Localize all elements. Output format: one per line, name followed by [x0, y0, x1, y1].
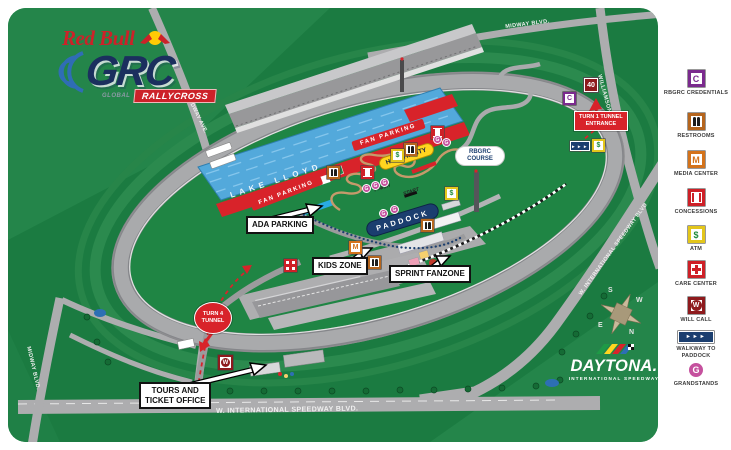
daytona-flags-icon	[590, 342, 638, 358]
legend-item-walkway: ►►► WALKWAY TO PADDOCK	[661, 331, 731, 360]
legend-item-concessions: CONCESSIONS	[661, 189, 731, 216]
legend-item-atm: $ ATM	[661, 226, 731, 253]
media-center-icon: M	[349, 241, 362, 254]
turn4-line2: TUNNEL	[202, 318, 225, 325]
legend-label: MEDIA CENTER	[674, 171, 718, 178]
grandstand-glyph: G	[365, 186, 369, 192]
atm-icon: $	[688, 226, 705, 243]
atm-icon: $	[391, 149, 404, 162]
grandstands-icon: G	[379, 209, 388, 218]
legend-item-restrooms: RESTROOMS	[661, 113, 731, 140]
credentials-icon: C	[688, 70, 705, 87]
grandstand-glyph: G	[445, 140, 449, 146]
grc-wordmark: GRC	[83, 47, 175, 95]
walkway-icon: ►►►	[678, 331, 714, 343]
legend-item-grandstands: G GRANDSTANDS	[661, 362, 731, 388]
compass-s: S	[608, 287, 613, 294]
grandstand-glyph: G	[692, 365, 699, 375]
grandstand-glyph: G	[382, 211, 386, 217]
rbgrc-course-label: RBGRC COURSE	[455, 146, 505, 166]
grandstand-glyph: G	[436, 137, 440, 143]
credentials-glyph: C	[693, 74, 700, 84]
grandstand-glyph: G	[383, 180, 387, 186]
turn1-line2: ENTRANCE	[586, 121, 617, 127]
restrooms-icon	[368, 256, 381, 269]
legend-label: RBGRC CREDENTIALS	[664, 90, 728, 97]
media-center-icon: M	[688, 151, 705, 168]
will-call-glyph: W	[221, 358, 230, 367]
grc-swoosh-icon	[50, 49, 86, 93]
turn1-line1: TURN 1 TUNNEL	[579, 114, 623, 120]
tours-line1: TOURS AND	[152, 386, 199, 395]
legend-label: WALKWAY TO PADDOCK	[673, 346, 719, 360]
turn4-tunnel-callout: TURN 4 TUNNEL	[194, 302, 232, 334]
atm-icon: $	[592, 139, 605, 152]
rbgrc-course-line2: COURSE	[467, 156, 493, 162]
route-40-shield: 40	[584, 78, 598, 92]
care-center-icon	[688, 261, 705, 278]
grandstands-icon: G	[442, 138, 451, 147]
restrooms-icon	[327, 166, 340, 179]
atm-glyph: $	[597, 142, 601, 149]
legend-item-will-call: W WILL CALL	[661, 297, 731, 324]
legend-item-care-center: CARE CENTER	[661, 261, 731, 288]
legend-label: CONCESSIONS	[675, 209, 718, 216]
ada-parking-callout: ADA PARKING	[246, 216, 314, 234]
red-bull-grc-logo: Red Bull GRC GLOBAL RALLYCROSS	[50, 26, 240, 103]
credentials-glyph: C	[567, 95, 572, 102]
atm-glyph: $	[450, 190, 454, 197]
legend-label: RESTROOMS	[677, 133, 714, 140]
speedway-event-map: MIDWAY AVE. MIDWAY BLVD. WILLIAMSON BLVD…	[0, 0, 731, 450]
will-call-glyph: W	[691, 300, 702, 311]
rbgrc-course-line1: RBGRC	[469, 149, 491, 155]
tours-line2: TICKET OFFICE	[145, 396, 205, 405]
kids-zone-callout: KIDS ZONE	[312, 257, 368, 275]
rallycross-label: RALLYCROSS	[134, 89, 218, 103]
red-bull-bulls-icon	[138, 30, 172, 48]
turn1-tunnel-entrance-callout: TURN 1 TUNNEL ENTRANCE	[574, 111, 628, 131]
legend-label: WILL CALL	[680, 317, 711, 324]
atm-icon: $	[445, 187, 458, 200]
concessions-icon	[361, 166, 374, 179]
restrooms-icon	[421, 219, 434, 232]
walkway-icon: ►►►	[570, 141, 590, 151]
legend-label: ATM	[690, 246, 702, 253]
media-glyph: M	[353, 244, 359, 251]
care-center-icon	[284, 259, 297, 272]
atm-glyph: $	[396, 152, 400, 159]
tours-ticket-office-callout: TOURS AND TICKET OFFICE	[139, 382, 211, 409]
grandstands-icon: G	[390, 205, 399, 214]
will-call-icon: W	[218, 355, 233, 370]
pond	[545, 379, 559, 387]
legend-label: CARE CENTER	[675, 281, 717, 288]
restrooms-icon	[404, 143, 417, 156]
media-glyph: M	[692, 155, 700, 165]
daytona-subtitle: INTERNATIONAL SPEEDWAY	[558, 376, 670, 381]
will-call-icon: W	[688, 297, 705, 314]
daytona-wordmark: DAYTONA.	[558, 358, 670, 375]
grandstands-icon: G	[362, 184, 371, 193]
concessions-icon	[688, 189, 705, 206]
compass-e: E	[598, 322, 603, 329]
restrooms-icon	[688, 113, 705, 130]
legend-item-media-center: M MEDIA CENTER	[661, 151, 731, 178]
grandstands-icon: G	[688, 362, 704, 378]
atm-glyph: $	[693, 230, 698, 240]
grandstands-icon: G	[380, 178, 389, 187]
grandstands-icon: G	[371, 181, 380, 190]
grandstand-glyph: G	[374, 183, 378, 189]
compass-n: N	[629, 329, 634, 336]
turn4-line1: TURN 4	[203, 311, 223, 318]
grandstand-glyph: G	[393, 207, 397, 213]
pond	[94, 309, 106, 317]
compass-w: W	[636, 297, 643, 304]
credentials-icon: C	[563, 92, 576, 105]
legend-label: GRANDSTANDS	[674, 381, 719, 388]
grandstands-icon: G	[433, 135, 442, 144]
daytona-logo: DAYTONA. INTERNATIONAL SPEEDWAY	[558, 342, 670, 381]
sprint-fanzone-callout: SPRINT FANZONE	[389, 265, 471, 283]
legend-item-credentials: C RBGRC CREDENTIALS	[661, 70, 731, 97]
